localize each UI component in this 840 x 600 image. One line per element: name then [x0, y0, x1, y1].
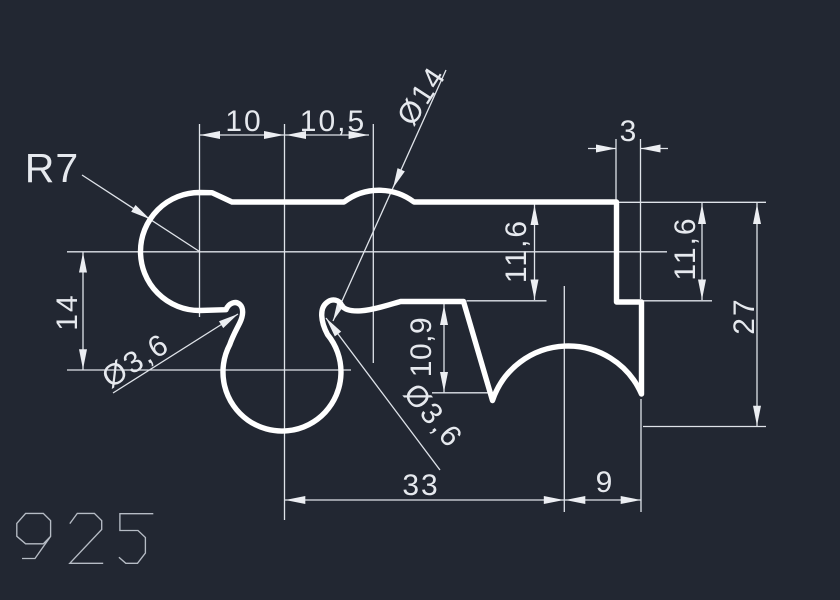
svg-text:14: 14: [51, 293, 84, 330]
svg-text:11,6: 11,6: [669, 216, 702, 280]
svg-text:10: 10: [225, 105, 262, 138]
svg-text:10,5: 10,5: [300, 105, 366, 138]
svg-text:27: 27: [728, 297, 761, 334]
svg-text:10,9: 10,9: [405, 317, 438, 377]
svg-text:11,6: 11,6: [500, 219, 533, 283]
svg-text:R7: R7: [25, 145, 79, 191]
svg-text:9: 9: [596, 466, 615, 499]
svg-text:33: 33: [402, 469, 439, 502]
svg-text:3: 3: [620, 115, 639, 148]
